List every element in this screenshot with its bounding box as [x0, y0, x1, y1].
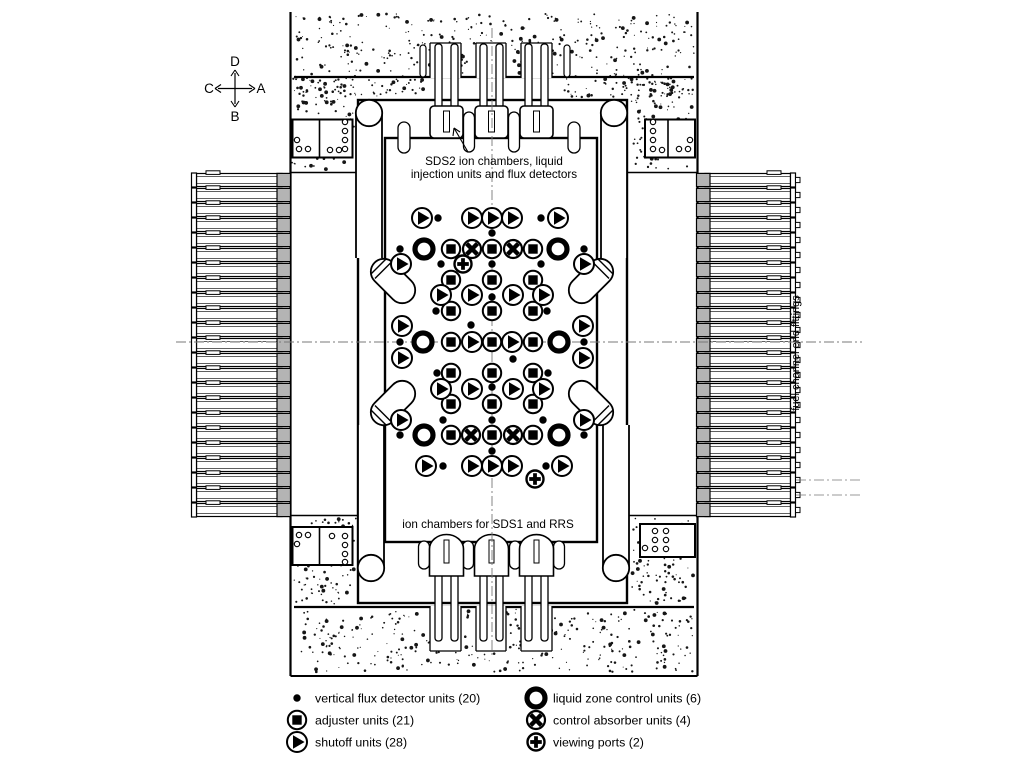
end-fitting-row [697, 441, 801, 457]
shutoff-unit [502, 456, 522, 476]
legend-item: adjuster units (21) [288, 711, 414, 729]
compass-up-label: D [230, 54, 240, 69]
shutoff-unit [573, 348, 593, 368]
vertical-flux-detector-unit [537, 214, 544, 221]
vertical-flux-detector-unit [488, 293, 495, 300]
viewing-port-icon [528, 734, 545, 751]
shutoff-unit [573, 316, 593, 336]
liquid-zone-control-unit [415, 426, 433, 444]
end-fitting-row [192, 321, 291, 337]
shutoff-unit [392, 316, 412, 336]
shutoff-unit [462, 456, 482, 476]
shutoff-unit [431, 379, 451, 399]
end-fitting-row [697, 216, 801, 232]
end-fitting-row [697, 291, 801, 307]
shutoff-unit [503, 379, 523, 399]
end-fitting-row [192, 396, 291, 412]
shutoff-unit [482, 456, 502, 476]
shutoff-unit [391, 254, 411, 274]
shutoff-unit [416, 456, 436, 476]
end-fitting-row [697, 486, 801, 502]
viewing-port [455, 256, 472, 273]
end-fitting-row [192, 441, 291, 457]
shutoff-unit [462, 332, 482, 352]
end-fitting-row [192, 246, 291, 262]
end-fitting-row [697, 381, 801, 397]
end-fitting-row [697, 261, 801, 277]
legend-item: liquid zone control units (6) [527, 689, 701, 707]
control-absorber-unit [504, 240, 522, 258]
orientation-compass: D B C A [204, 54, 265, 124]
vertical-flux-detector-unit [488, 229, 495, 236]
shutoff-unit [533, 285, 553, 305]
vertical-flux-detector-unit [396, 431, 403, 438]
vertical-flux-detector-unit [488, 383, 495, 390]
end-fitting-row [192, 471, 291, 487]
fuel-channel-end-fittings-left [192, 171, 291, 517]
end-fitting-row [697, 426, 801, 442]
adjuster-unit [483, 271, 501, 289]
compass-left-label: C [204, 81, 214, 96]
end-fitting-row [192, 216, 291, 232]
end-fitting-row [697, 471, 801, 487]
shutoff-unit [412, 208, 432, 228]
shutoff-unit [502, 208, 522, 228]
vertical-flux-detector-unit [537, 260, 544, 267]
adjuster-unit [483, 240, 501, 258]
end-fitting-row [697, 336, 801, 352]
shutoff-unit [431, 285, 451, 305]
adjuster-unit [483, 364, 501, 382]
adjuster-unit [483, 302, 501, 320]
vertical-flux-detector-unit [467, 321, 474, 328]
end-fitting-row [697, 456, 801, 472]
flux-detector-icon [293, 694, 300, 701]
shutoff-unit [462, 285, 482, 305]
fuel-channel-end-fittings-right [697, 171, 861, 517]
end-fitting-row [192, 261, 291, 277]
end-fitting-row [192, 186, 291, 202]
adjuster-unit [524, 426, 542, 444]
adjuster-unit [483, 426, 501, 444]
legend-item: viewing ports (2) [528, 734, 644, 751]
end-fitting-row [697, 306, 801, 322]
reactor-plan-drawing: SDS2 ion chambers, liquid injection unit… [0, 0, 1024, 768]
end-fitting-row [192, 426, 291, 442]
end-fitting-row [697, 411, 801, 427]
vertical-flux-detector-unit [544, 369, 551, 376]
adjuster-unit [524, 240, 542, 258]
shutoff-unit [391, 410, 411, 430]
shutoff-unit [548, 208, 568, 228]
end-fitting-row [192, 456, 291, 472]
legend-item: vertical flux detector units (20) [293, 691, 480, 705]
vertical-flux-detector-unit [488, 447, 495, 454]
legend-item: shutoff units (28) [287, 732, 407, 752]
end-fitting-row [192, 306, 291, 322]
shutoff-unit [574, 254, 594, 274]
end-fitting-row [192, 171, 291, 187]
control-absorber-unit [504, 426, 522, 444]
legend: vertical flux detector units (20)adjuste… [287, 689, 701, 752]
shutoff-icon [287, 732, 307, 752]
legend-label: control absorber units (4) [553, 713, 691, 727]
vertical-flux-detector-unit [580, 338, 587, 345]
shutoff-unit [574, 410, 594, 430]
vertical-flux-detector-unit [396, 245, 403, 252]
liquid-zone-control-unit [415, 240, 433, 258]
vertical-flux-detector-unit [488, 260, 495, 267]
liquid-zone-control-unit [549, 240, 567, 258]
vertical-flux-detector-unit [542, 462, 549, 469]
end-fitting-row [697, 276, 801, 292]
liquid-zone-control-unit [550, 333, 568, 351]
end-fitting-row [192, 486, 291, 502]
vertical-flux-detector-unit [432, 307, 439, 314]
legend-label: adjuster units (21) [315, 713, 414, 727]
fuel-channel-end-fittings-label: fuel channel end fittings [790, 295, 802, 411]
vertical-flux-detector-unit [543, 307, 550, 314]
adjuster-unit [442, 240, 460, 258]
end-fitting-row [697, 501, 801, 517]
vertical-flux-detector-unit [437, 260, 444, 267]
adjuster-unit [442, 426, 460, 444]
sds2-label-line2: injection units and flux detectors [411, 168, 577, 181]
vertical-flux-detector-unit [509, 355, 516, 362]
adjuster-icon [288, 711, 306, 729]
end-fitting-row [697, 351, 801, 367]
vertical-flux-detector-unit [488, 416, 495, 423]
shutoff-unit [502, 332, 522, 352]
end-fitting-row [192, 381, 291, 397]
vertical-flux-detector-unit [539, 416, 546, 423]
legend-label: liquid zone control units (6) [553, 691, 701, 705]
compass-down-label: B [230, 109, 239, 124]
control-absorber-icon [527, 711, 545, 729]
legend-label: shutoff units (28) [315, 735, 407, 749]
shutoff-unit [533, 379, 553, 399]
shutoff-unit [552, 456, 572, 476]
adjuster-unit [524, 333, 542, 351]
end-fitting-row [192, 291, 291, 307]
liquid-zone-icon [527, 689, 545, 707]
compass-right-label: A [256, 81, 265, 96]
shutoff-unit [462, 208, 482, 228]
end-fitting-row [192, 201, 291, 217]
vertical-flux-detector-unit [580, 431, 587, 438]
end-fitting-row [697, 396, 801, 412]
vertical-flux-detector-unit [580, 245, 587, 252]
end-fitting-row [697, 246, 801, 262]
shutoff-unit [503, 285, 523, 305]
end-fitting-row [697, 366, 801, 382]
shutoff-unit [462, 379, 482, 399]
vertical-flux-detector-unit [396, 338, 403, 345]
end-fitting-row [697, 231, 801, 247]
sds1-rrs-label: ion chambers for SDS1 and RRS [402, 518, 574, 531]
adjuster-unit [442, 333, 460, 351]
liquid-zone-control-unit [414, 333, 432, 351]
adjuster-unit [483, 333, 501, 351]
end-fitting-row [697, 171, 801, 187]
shutoff-unit [392, 348, 412, 368]
sds2-label-line1: SDS2 ion chambers, liquid [425, 155, 563, 168]
liquid-zone-control-unit [550, 426, 568, 444]
end-fitting-row [192, 366, 291, 382]
compass-arrows-icon [215, 70, 255, 107]
adjuster-unit [483, 395, 501, 413]
end-fitting-row [697, 201, 801, 217]
end-fitting-row [697, 321, 801, 337]
end-fitting-row [192, 501, 291, 517]
vertical-flux-detector-unit [433, 369, 440, 376]
reactor-top-view-diagram: SDS2 ion chambers, liquid injection unit… [0, 0, 1024, 768]
shutoff-unit [482, 208, 502, 228]
legend-label: vertical flux detector units (20) [315, 691, 480, 705]
viewing-port [527, 471, 544, 488]
control-absorber-unit [462, 426, 480, 444]
legend-item: control absorber units (4) [527, 711, 691, 729]
end-fitting-row [192, 336, 291, 352]
end-fitting-row [697, 186, 801, 202]
vertical-flux-detector-unit [439, 416, 446, 423]
end-fitting-row [192, 231, 291, 247]
end-fitting-row [192, 411, 291, 427]
end-fitting-row [192, 351, 291, 367]
legend-label: viewing ports (2) [553, 735, 644, 749]
vertical-flux-detector-unit [434, 214, 441, 221]
end-fitting-row [192, 276, 291, 292]
vertical-flux-detector-unit [439, 462, 446, 469]
